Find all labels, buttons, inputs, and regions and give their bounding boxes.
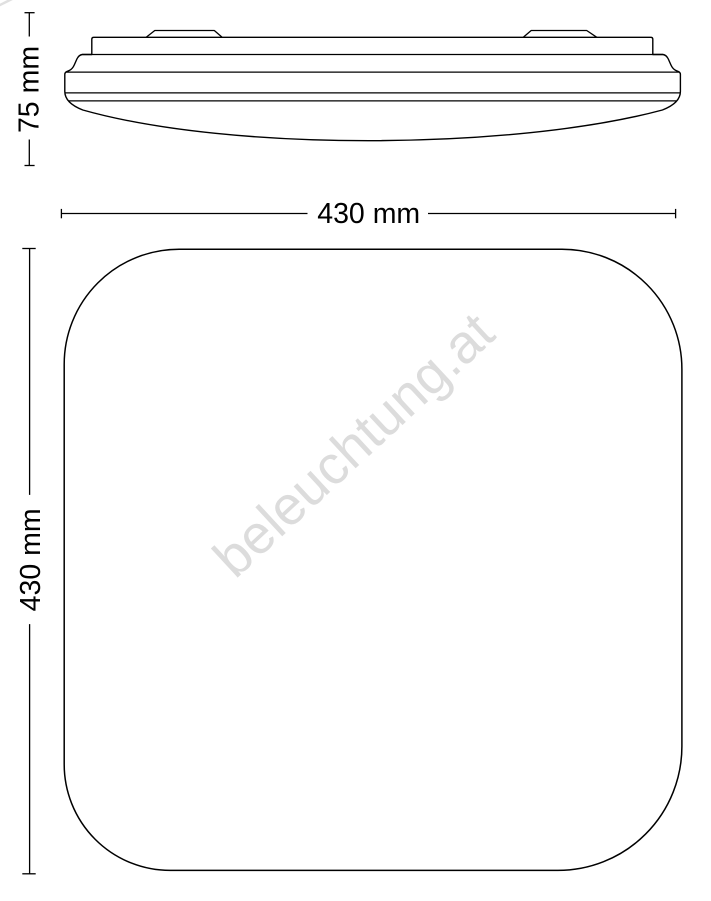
svg-text:75 mm: 75 mm [13, 46, 45, 133]
svg-text:430 mm: 430 mm [317, 198, 420, 230]
svg-text:430 mm: 430 mm [15, 508, 47, 611]
